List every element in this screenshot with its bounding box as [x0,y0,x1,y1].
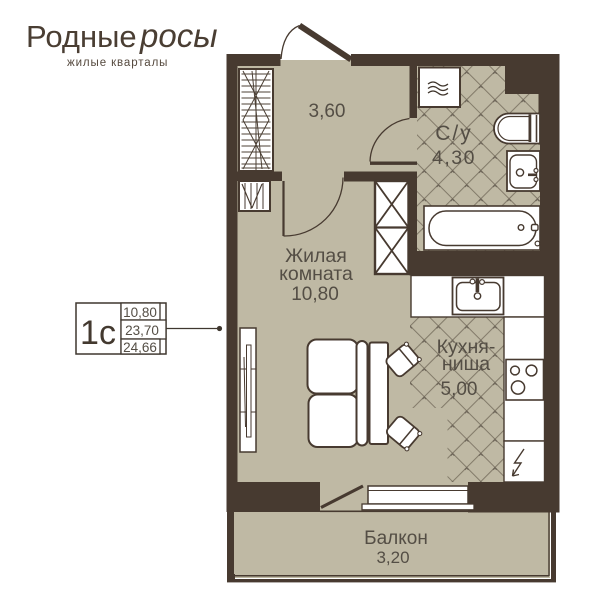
svg-text:Балкон: Балкон [364,528,428,549]
svg-text:10,80: 10,80 [291,284,339,305]
svg-text:комната: комната [279,263,353,285]
svg-text:Родные: Родные [26,19,137,54]
svg-text:1с: 1с [80,314,116,352]
svg-text:жилые кварталы: жилые кварталы [67,57,168,69]
svg-text:3,20: 3,20 [376,548,409,567]
svg-text:23,70: 23,70 [125,323,159,338]
svg-text:3,60: 3,60 [309,101,346,122]
svg-text:ниша: ниша [442,353,490,375]
svg-text:росы: росы [139,17,218,54]
svg-text:4,30: 4,30 [432,147,476,169]
svg-text:5,00: 5,00 [441,379,478,400]
svg-text:10,80: 10,80 [123,305,157,320]
svg-text:24,66: 24,66 [123,340,157,355]
svg-text:С/у: С/у [435,122,473,145]
